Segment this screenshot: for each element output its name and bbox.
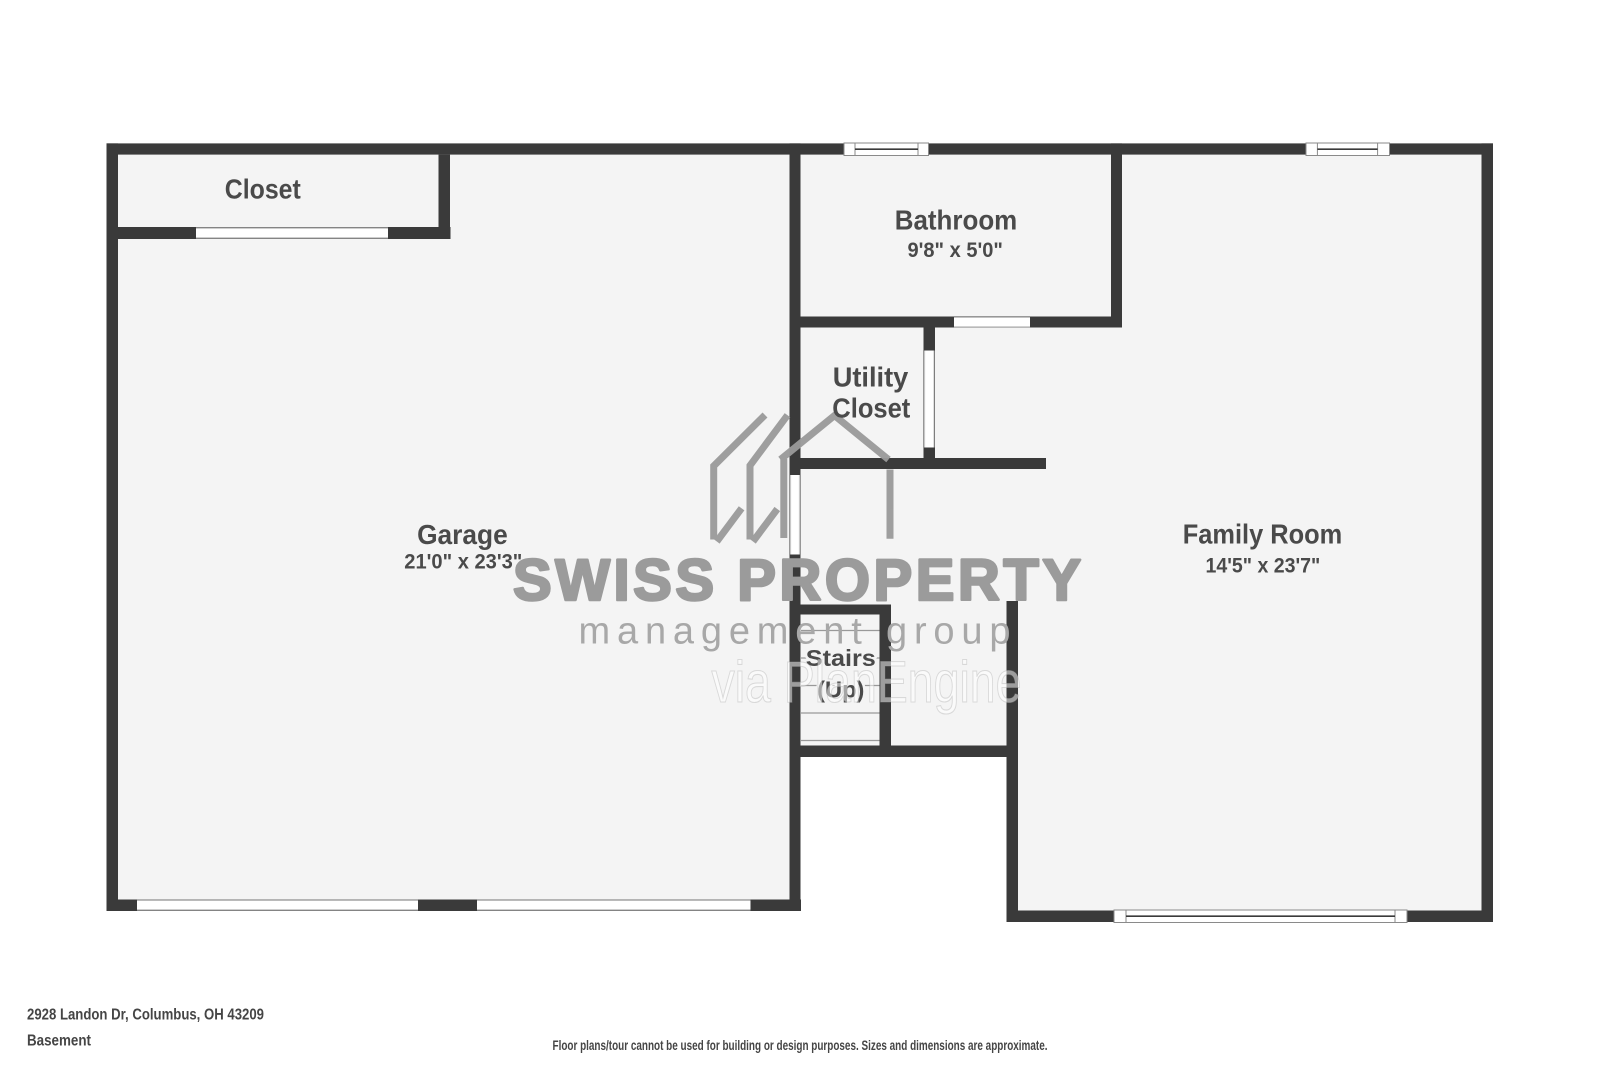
svg-text:Family Room: Family Room (1183, 519, 1342, 550)
svg-text:via PlanEngine: via PlanEngine (712, 650, 1022, 715)
svg-text:2928 Landon Dr, Columbus, OH 4: 2928 Landon Dr, Columbus, OH 43209 (27, 1006, 264, 1023)
svg-text:21'0" x 23'3": 21'0" x 23'3" (404, 551, 522, 574)
svg-text:Floor plans/tour cannot be use: Floor plans/tour cannot be used for buil… (553, 1038, 1048, 1053)
svg-text:SWISS PROPERTY: SWISS PROPERTY (513, 548, 1081, 613)
svg-text:Utility: Utility (833, 361, 909, 392)
svg-text:Closet: Closet (832, 393, 910, 424)
svg-text:14'5" x 23'7": 14'5" x 23'7" (1206, 555, 1321, 578)
svg-text:9'8" x 5'0": 9'8" x 5'0" (908, 239, 1003, 262)
svg-text:Closet: Closet (225, 174, 301, 205)
svg-text:Garage: Garage (417, 519, 508, 550)
svg-text:Basement: Basement (27, 1033, 91, 1050)
svg-text:Bathroom: Bathroom (895, 205, 1018, 236)
